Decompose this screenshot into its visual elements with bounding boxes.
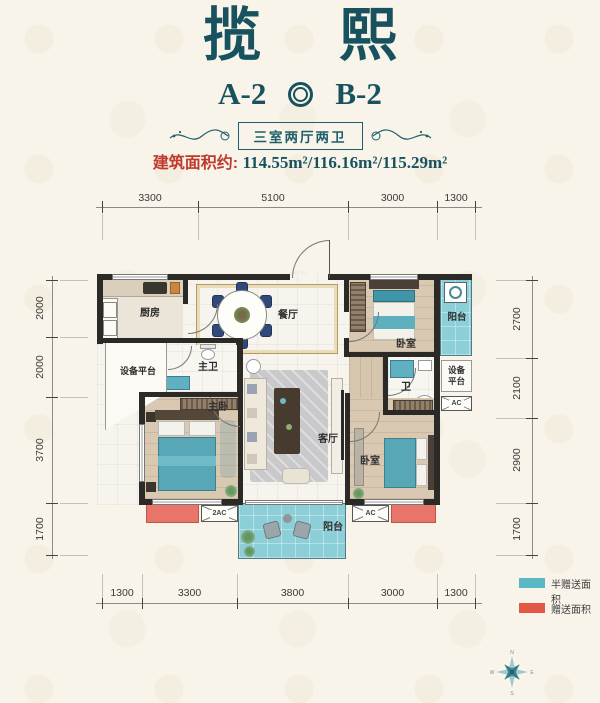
window (139, 424, 145, 482)
compass-n: N (510, 650, 514, 656)
washer-drum (449, 286, 462, 299)
dim-line-bottom (96, 603, 482, 604)
dim-tick (46, 280, 58, 281)
tv-icon (341, 390, 344, 460)
legend-swatch-gift (519, 603, 545, 613)
ac-platform-bottom-right: AC (352, 505, 389, 522)
dim-ext (496, 503, 526, 504)
dim-ext (496, 418, 526, 419)
wall (344, 274, 349, 312)
pillow (158, 421, 185, 436)
dim-bottom-4: 3000 (348, 587, 437, 599)
dim-right-4: 1700 (511, 509, 523, 549)
area-row: 建筑面积约: 114.55m²/116.16m²/115.29m² (0, 149, 600, 173)
area-label: 建筑面积约: (153, 155, 238, 172)
footstool (282, 468, 310, 484)
area-values: 114.55m²/116.16m²/115.29m² (243, 153, 448, 172)
dim-ext (496, 358, 526, 359)
dim-ext (348, 214, 349, 240)
dim-ext (496, 280, 526, 281)
ac2-label: 2AC (210, 510, 228, 518)
label-master-bath: 主卫 (190, 362, 226, 373)
floorplan-poster: 揽 熙 A-2 B-2 三室两厅两卫 建筑面积约: 114.55m²/116.1… (0, 0, 600, 703)
dim-tick (475, 201, 476, 213)
compass-s: S (510, 691, 514, 696)
wall (434, 274, 440, 505)
dim-ext (60, 280, 88, 281)
label-bath: 卫 (398, 382, 414, 393)
compass-w: W (490, 670, 495, 676)
stove-icon (143, 282, 167, 294)
sofa-cushion (247, 454, 257, 464)
bed-throw (373, 316, 415, 329)
dim-top-2: 5100 (198, 192, 348, 204)
dim-top-1: 3300 (102, 192, 198, 204)
title-char-right: 熙 (339, 6, 397, 67)
label-balcony-top: 阳台 (442, 312, 472, 323)
wall (97, 274, 103, 344)
table-centerpiece (234, 307, 250, 323)
bed-headboard (369, 280, 419, 289)
fridge-door (103, 302, 117, 318)
label-bedroom-top: 卧室 (386, 339, 426, 350)
plant-icon (225, 485, 237, 497)
dim-bottom-2: 3300 (142, 587, 237, 599)
window (370, 274, 418, 280)
window (364, 499, 424, 505)
dim-tick (46, 503, 58, 504)
entry-door-leaf (329, 240, 330, 278)
dim-tick (46, 555, 58, 556)
flourish-right-icon (369, 124, 433, 148)
label-equip-right-2: 平台 (441, 376, 472, 386)
plant-icon (241, 530, 255, 544)
dim-ext (60, 397, 88, 398)
dim-left-4: 1700 (34, 509, 46, 549)
dim-bottom-5: 1300 (437, 587, 475, 599)
plant-icon (353, 488, 364, 499)
pillow (373, 290, 415, 302)
floorplan: AC 2AC AC (88, 238, 488, 568)
compass-e: E (530, 670, 534, 676)
side-table (246, 359, 261, 374)
dim-left-1: 2000 (34, 288, 46, 328)
dim-top-3: 3000 (348, 192, 437, 204)
legend-gift-label: 赠送面积 (551, 601, 591, 616)
dim-right-2: 2100 (511, 368, 523, 408)
pillow (189, 421, 216, 436)
label-kitchen: 厨房 (126, 308, 174, 319)
dim-tick (526, 280, 538, 281)
table-decor (286, 424, 292, 430)
dim-ext (60, 555, 88, 556)
label-bedroom-bottom: 卧室 (350, 456, 390, 467)
bathtub-icon (166, 376, 190, 390)
banner-label: 三室两厅两卫 (238, 122, 363, 150)
dim-tick (526, 358, 538, 359)
title-char-left: 揽 (203, 6, 261, 67)
ac-label: AC (363, 510, 377, 518)
double-ring-icon (288, 82, 313, 107)
kitchen-item (170, 282, 180, 294)
page-title: 揽 熙 (0, 6, 600, 67)
toilet-icon (201, 349, 215, 360)
ac-platform-right: AC (441, 396, 472, 411)
window (112, 274, 168, 280)
coffee-table (274, 388, 300, 454)
label-dining: 餐厅 (268, 310, 308, 321)
dim-bottom-3: 3800 (237, 587, 348, 599)
ac-platform-bottom-left: 2AC (201, 505, 238, 522)
dim-ext (60, 503, 88, 504)
dim-ext (437, 214, 438, 240)
dim-tick (46, 397, 58, 398)
wall (345, 393, 350, 505)
dim-ext (496, 555, 526, 556)
unit-b-label: B-2 (335, 76, 382, 112)
bed-throw (158, 456, 216, 466)
dim-tick (526, 555, 538, 556)
dim-line-top (96, 207, 482, 208)
fridge-door (103, 320, 117, 336)
dim-ext (475, 574, 476, 598)
label-equip-left: 设备平台 (106, 366, 170, 377)
dim-ext (198, 214, 199, 240)
dim-bottom-1: 1300 (102, 587, 142, 599)
bath-counter (418, 360, 432, 371)
dim-left-2: 2000 (34, 347, 46, 387)
label-balcony-bottom: 阳台 (316, 522, 350, 533)
dim-tick (526, 503, 538, 504)
dim-tick (526, 418, 538, 419)
pillow (416, 438, 427, 460)
label-living: 客厅 (310, 434, 346, 445)
sofa-cushion (247, 432, 257, 442)
label-master-bedroom: 主卧 (200, 402, 236, 413)
dim-line-left (52, 276, 53, 559)
wall (97, 338, 243, 343)
wall (237, 340, 243, 397)
dim-top-4: 1300 (437, 192, 475, 204)
label-equip-right-1: 设备 (441, 365, 472, 375)
compass-icon: N E S W (490, 648, 534, 696)
nightstand (146, 482, 156, 492)
dim-ext (102, 214, 103, 240)
dim-tick (475, 597, 476, 609)
unit-a-label: A-2 (218, 76, 266, 112)
wall (383, 410, 440, 415)
dim-left-3: 3700 (34, 430, 46, 470)
dim-right-1: 2700 (511, 299, 523, 339)
dim-ext (60, 337, 88, 338)
sofa-cushion (247, 384, 257, 394)
table-decor (280, 398, 286, 404)
unit-row: A-2 B-2 (0, 76, 600, 112)
plant-icon (244, 546, 255, 557)
wall (344, 352, 437, 357)
banner-row: 三室两厅两卫 (0, 122, 600, 150)
dim-ext (475, 214, 476, 240)
wall (183, 274, 188, 304)
pillow (416, 464, 427, 486)
dim-right-3: 2900 (511, 440, 523, 480)
bedside-rug (220, 420, 236, 478)
sliding-door (245, 500, 343, 505)
window (152, 499, 222, 505)
ac-label: AC (449, 400, 463, 408)
balcony-table (283, 514, 292, 523)
dim-tick (46, 337, 58, 338)
entry-door-arc (292, 240, 330, 278)
legend-swatch-half-gift (519, 578, 545, 588)
flourish-left-icon (168, 124, 232, 148)
sofa-cushion (247, 408, 257, 418)
